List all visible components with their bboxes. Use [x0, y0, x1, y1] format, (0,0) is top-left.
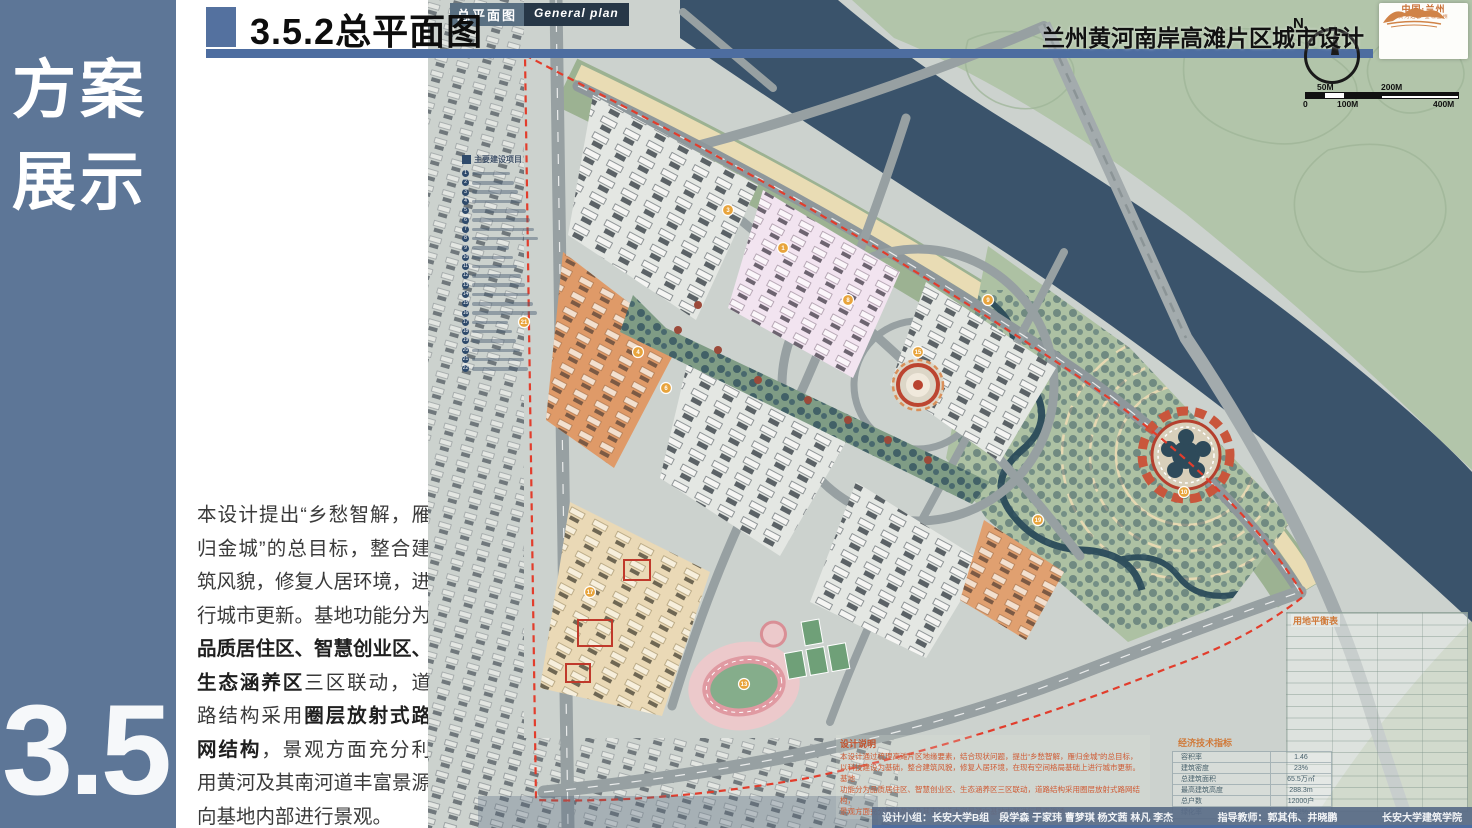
master-plan-map: 134689131510171921 总平面图 General plan 主要建…	[428, 0, 1472, 828]
legend-item: 3	[462, 188, 562, 197]
legend-item: 16	[462, 308, 562, 317]
legend-item-number: 8	[462, 235, 469, 242]
scale-bar-bottom-labels: 0 100M 400M	[1303, 99, 1465, 109]
legend-item: 7	[462, 225, 562, 234]
legend-item: 1	[462, 169, 562, 178]
legend-item-number: 2	[462, 179, 469, 186]
legend-item: 9	[462, 243, 562, 252]
legend-item: 20	[462, 346, 562, 355]
legend-item-label	[472, 339, 516, 343]
project-badge-number: 19	[1035, 518, 1042, 524]
legend-item-number: 6	[462, 217, 469, 224]
legend-item-label	[472, 246, 509, 250]
credits-team: 设计小组：长安大学B组 段学森 于家玮 曹梦琪 杨文茜 林凡 李杰	[882, 809, 1173, 824]
legend-item-label	[472, 190, 518, 194]
econ-row-label: 最高建筑高度	[1173, 785, 1271, 795]
econ-row-label: 建筑密度	[1173, 763, 1271, 773]
legend-item-number: 17	[462, 319, 469, 326]
scale-label-200m: 200M	[1381, 82, 1402, 92]
legend-item: 4	[462, 197, 562, 206]
legend-item-number: 3	[462, 189, 469, 196]
legend-item-label	[472, 321, 508, 325]
title-accent-square	[206, 7, 236, 47]
legend-item: 18	[462, 327, 562, 336]
scale-bar: 50M 200M 0 100M 400M	[1303, 82, 1465, 109]
legend-item-number: 19	[462, 337, 469, 344]
legend-item: 2	[462, 178, 562, 187]
credits-advisors: 指导教师：郭其伟、井晓鹏	[1218, 809, 1338, 824]
scale-segment	[1306, 93, 1325, 98]
scale-bar-segments	[1305, 92, 1459, 99]
legend-item: 17	[462, 318, 562, 327]
legend-item-number: 13	[462, 282, 469, 289]
legend-item-number: 15	[462, 300, 469, 307]
legend-item-label	[472, 237, 538, 241]
intro-seg1: 本设计提出“乡愁智解，雁归金城”的总目标，整合建筑风貌，修复人居环境，进行城市更…	[197, 504, 431, 627]
legend-title-text: 主要建设项目	[474, 154, 522, 165]
legend-item: 10	[462, 253, 562, 262]
legend-item-label	[472, 256, 513, 260]
credits-bar: 设计小组：长安大学B组 段学森 于家玮 曹梦琪 杨文茜 林凡 李杰 指导教师：郭…	[872, 807, 1472, 828]
sidebar-title: 方案 展示	[12, 44, 148, 228]
design-note-line: 本设计通过梳理高滩片区地缘要素，结合现状问题，提出“乡愁智解，雁归金城”的总目标…	[840, 751, 1146, 762]
legend-item-label	[472, 274, 521, 278]
scale-label-50m: 50M	[1317, 82, 1334, 92]
legend-item: 19	[462, 336, 562, 345]
scale-bar-top-labels: 50M 200M	[1303, 82, 1465, 92]
land-use-table-title: 用地平衡表	[1291, 614, 1340, 627]
scale-label-400m: 400M	[1433, 99, 1454, 109]
design-note-title: 设计说明	[840, 737, 1146, 750]
econ-row: 总户数12000户	[1173, 796, 1331, 807]
map-label-en: General plan	[524, 3, 629, 26]
project-badge-number: 10	[1181, 490, 1188, 496]
econ-row: 容积率1.46	[1173, 752, 1331, 763]
project-badge-number: 15	[915, 350, 922, 356]
legend-items: 12345678910111213141516171819202122	[462, 169, 562, 374]
legend-item-label	[472, 302, 533, 306]
legend-title: 主要建设项目	[462, 154, 562, 165]
econ-table-title: 经济技术指标	[1172, 736, 1332, 749]
legend-item-label	[472, 228, 534, 232]
econ-row-value: 1.46	[1271, 752, 1331, 762]
legend-item-number: 20	[462, 347, 469, 354]
legend-item-number: 11	[462, 263, 469, 270]
legend-item: 21	[462, 355, 562, 364]
econ-row: 最高建筑高度288.3m	[1173, 785, 1331, 796]
design-note-line: 功能分为品质居住区、智慧创业区、生态涵养区三区联动，道路结构采用圈层放射式路网结…	[840, 784, 1146, 806]
page-title: 3.5.2总平面图	[250, 3, 483, 55]
project-title: 兰州黄河南岸高滩片区城市设计	[1042, 19, 1364, 53]
scale-segment	[1344, 93, 1382, 98]
legend-item-label	[472, 200, 522, 204]
legend-item-number: 12	[462, 272, 469, 279]
legend-item-label	[472, 209, 526, 213]
legend-item: 15	[462, 299, 562, 308]
project-badge-number: 17	[587, 590, 594, 596]
econ-row-value: 23%	[1271, 763, 1331, 773]
legend-item: 13	[462, 281, 562, 290]
legend-item: 11	[462, 262, 562, 271]
legend-item-label	[472, 293, 529, 297]
scale-label-100m: 100M	[1337, 99, 1358, 109]
design-intro-paragraph: 本设计提出“乡愁智解，雁归金城”的总目标，整合建筑风貌，修复人居环境，进行城市更…	[197, 499, 431, 828]
scale-segment	[1325, 93, 1344, 98]
presentation-page: 方案 展示 3.5 3.5.2总平面图 兰州黄河南岸高滩片区城市设计 本设计提出…	[0, 0, 1472, 828]
econ-row-value: 12000户	[1271, 796, 1331, 806]
logo-mountain-icon	[1379, 3, 1449, 29]
legend-item: 5	[462, 206, 562, 215]
legend-item-number: 18	[462, 328, 469, 335]
sidebar: 方案 展示 3.5	[0, 0, 176, 828]
econ-row-label: 总户数	[1173, 796, 1271, 806]
credits-school: 长安大学建筑学院	[1382, 809, 1462, 824]
legend-item: 14	[462, 290, 562, 299]
legend-item-number: 10	[462, 254, 469, 261]
econ-row-label: 总建筑面积	[1173, 774, 1271, 784]
legend-item-number: 4	[462, 198, 469, 205]
legend-item-number: 1	[462, 170, 469, 177]
legend-item-label	[472, 330, 512, 334]
legend-item-number: 14	[462, 291, 469, 298]
map-legend: 主要建设项目 123456789101112131415161718192021…	[462, 154, 562, 374]
legend-item-label	[472, 358, 524, 362]
econ-row-label: 容积率	[1173, 752, 1271, 762]
legend-item-number: 7	[462, 226, 469, 233]
legend-item-label	[472, 367, 528, 371]
section-number: 3.5	[2, 676, 168, 826]
econ-row-value: 65.5万㎡	[1271, 774, 1331, 784]
legend-item-label	[472, 172, 510, 176]
legend-item-label	[472, 265, 517, 269]
econ-row-value: 288.3m	[1271, 785, 1331, 795]
design-note-line: 以科技建设为基础，整合建筑风貌，修复人居环境，在现有空间格局基础上进行城市更新。…	[840, 762, 1146, 784]
legend-item: 6	[462, 215, 562, 224]
scale-label-0: 0	[1303, 99, 1308, 109]
project-badge-number: 13	[741, 682, 748, 688]
econ-row: 建筑密度23%	[1173, 763, 1331, 774]
sidebar-title-line1: 方案	[12, 44, 148, 136]
legend-item: 22	[462, 364, 562, 373]
legend-item: 8	[462, 234, 562, 243]
sidebar-title-line2: 展示	[12, 136, 148, 228]
legend-item-number: 9	[462, 245, 469, 252]
legend-item-number: 16	[462, 310, 469, 317]
legend-item-number: 21	[462, 356, 469, 363]
legend-item: 12	[462, 271, 562, 280]
scale-segment	[1382, 93, 1458, 98]
econ-row: 总建筑面积65.5万㎡	[1173, 774, 1331, 785]
legend-square-icon	[462, 155, 471, 164]
legend-item-label	[472, 181, 514, 185]
legend-item-label	[472, 218, 530, 222]
legend-item-number: 22	[462, 365, 469, 372]
legend-item-number: 5	[462, 207, 469, 214]
legend-item-label	[472, 283, 525, 287]
legend-item-label	[472, 349, 520, 353]
legend-item-label	[472, 311, 537, 315]
lanzhou-city-logo: 中国·兰州 黄河之都 金城兰州	[1379, 3, 1468, 59]
